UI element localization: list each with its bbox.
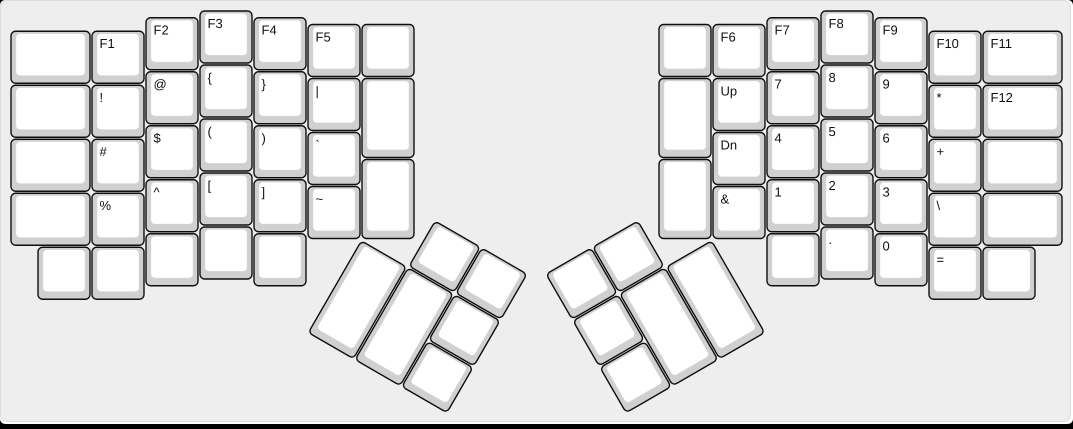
svg-text:{: { — [208, 70, 213, 85]
svg-text:Up: Up — [721, 83, 738, 98]
svg-text:*: * — [937, 90, 942, 105]
svg-text:@: @ — [154, 77, 167, 92]
svg-text:F8: F8 — [829, 16, 844, 31]
svg-text:F9: F9 — [883, 23, 898, 38]
svg-text:`: ` — [316, 137, 320, 152]
svg-text:8: 8 — [829, 70, 836, 85]
svg-text:2: 2 — [829, 178, 836, 193]
svg-text:^: ^ — [154, 185, 161, 200]
svg-text:3: 3 — [883, 185, 890, 200]
svg-text:F2: F2 — [154, 23, 169, 38]
svg-text:F6: F6 — [721, 29, 736, 44]
svg-text:F7: F7 — [775, 23, 790, 38]
svg-text:$: $ — [154, 131, 162, 146]
svg-text:1: 1 — [775, 185, 782, 200]
svg-text:F12: F12 — [991, 90, 1013, 105]
svg-text:): ) — [262, 131, 266, 146]
svg-text:.: . — [829, 232, 833, 247]
svg-text:[: [ — [208, 178, 212, 193]
svg-text:=: = — [937, 252, 945, 267]
svg-text:(: ( — [208, 124, 213, 139]
svg-text:5: 5 — [829, 124, 836, 139]
svg-text:F1: F1 — [100, 36, 115, 51]
svg-text:F10: F10 — [937, 36, 959, 51]
svg-text:+: + — [937, 144, 945, 159]
svg-text:4: 4 — [775, 131, 782, 146]
svg-text:Dn: Dn — [721, 137, 738, 152]
svg-text:|: | — [316, 83, 319, 98]
svg-text:7: 7 — [775, 77, 782, 92]
svg-text:\: \ — [937, 198, 941, 213]
svg-text:F11: F11 — [991, 36, 1012, 51]
svg-text:%: % — [100, 198, 112, 213]
svg-text:F4: F4 — [262, 23, 277, 38]
svg-text:#: # — [100, 144, 108, 159]
svg-text:9: 9 — [883, 77, 890, 92]
svg-text:F5: F5 — [316, 29, 331, 44]
svg-text:&: & — [721, 191, 730, 206]
svg-text:F3: F3 — [208, 16, 223, 31]
svg-text:]: ] — [262, 185, 266, 200]
svg-text:6: 6 — [883, 131, 890, 146]
svg-text:!: ! — [100, 90, 104, 105]
svg-text:~: ~ — [316, 191, 324, 206]
svg-text:}: } — [262, 77, 267, 92]
svg-text:0: 0 — [883, 239, 890, 254]
